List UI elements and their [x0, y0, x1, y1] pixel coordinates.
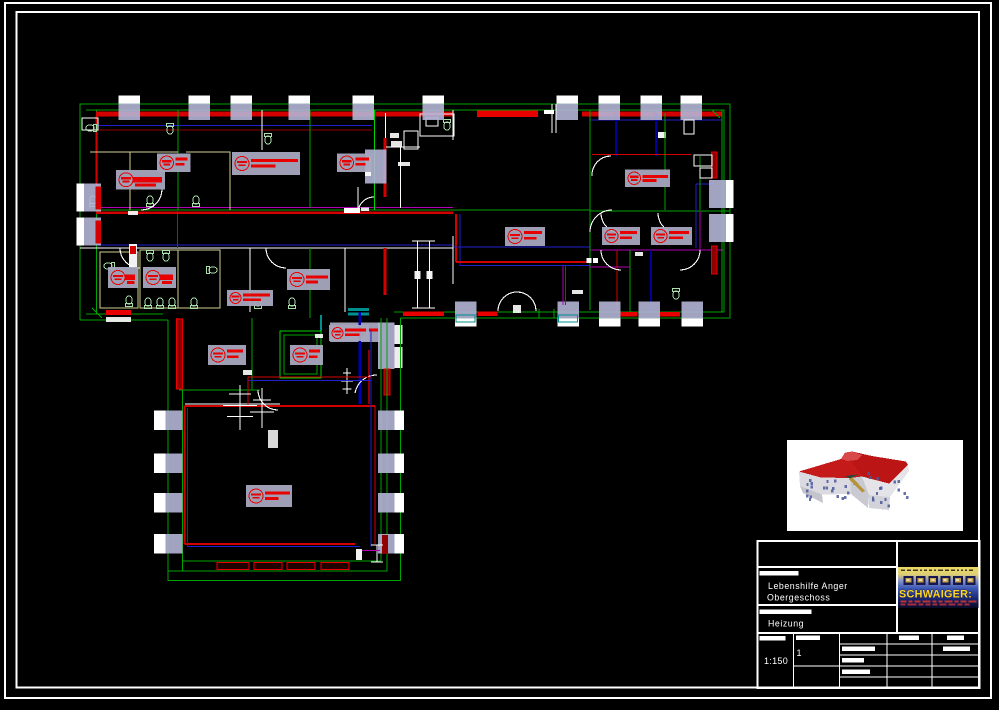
- svg-text:Lebenshilfe Anger: Lebenshilfe Anger: [768, 581, 848, 591]
- svg-text:Obergeschoss: Obergeschoss: [767, 593, 830, 603]
- svg-text:1: 1: [797, 648, 802, 658]
- svg-text:SCHWAIGER:: SCHWAIGER:: [899, 589, 972, 601]
- svg-text:1:150: 1:150: [764, 656, 788, 666]
- svg-text:Heizung: Heizung: [768, 619, 804, 629]
